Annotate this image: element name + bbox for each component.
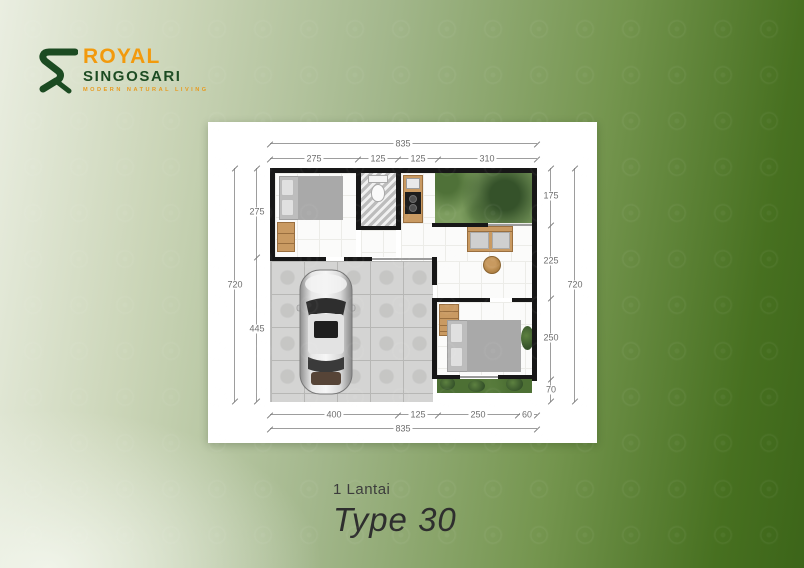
dim-left-total-line: 720 [234, 168, 235, 402]
dim-tick [395, 412, 401, 418]
caption-type: Type 30 [333, 501, 457, 539]
dim-right-seg-1: 175 [541, 192, 560, 201]
dim-top-seg-4: 310 [477, 155, 496, 164]
logo-brand: ROYAL [83, 46, 209, 67]
shrub [468, 380, 485, 392]
dim-tick [355, 156, 361, 162]
coffee-table [483, 256, 501, 274]
dim-right-total: 720 [565, 281, 584, 290]
dim-tick [435, 156, 441, 162]
bed-1-pillow [281, 199, 294, 216]
toilet-tank [368, 175, 388, 183]
wall-bedroom1-bathroom [356, 168, 361, 230]
logo-text: ROYAL SINGOSARI MODERN NATURAL LIVING [83, 46, 209, 94]
wall-bathroom-kitchen [396, 168, 401, 230]
brand-logo: ROYAL SINGOSARI MODERN NATURAL LIVING [36, 46, 209, 94]
wall-living-bedroom2-left [432, 298, 490, 302]
wall-top [270, 168, 537, 173]
dim-right-segments-line: 175 225 250 70 [550, 168, 551, 402]
dim-tick [254, 254, 260, 260]
shrub [506, 377, 523, 391]
bed-2-pillow [450, 323, 463, 343]
dim-tick [232, 165, 238, 171]
bed-2-pillow [450, 347, 463, 367]
dim-tick [572, 398, 578, 404]
dim-tick [548, 165, 554, 171]
wall-bedroom2-bottom-left [432, 375, 460, 379]
dim-top-seg-3: 125 [408, 155, 427, 164]
dim-right-seg-2: 225 [541, 257, 560, 266]
bed-2-blanket [467, 320, 521, 372]
bedroom2-window [460, 376, 498, 378]
dim-right-seg-4: 70 [544, 386, 558, 395]
caption-floors: 1 Lantai [333, 481, 457, 498]
wall-living-bedroom2-right [512, 298, 537, 302]
dim-left-total: 720 [225, 281, 244, 290]
wall-garden [432, 223, 488, 227]
floorplan-drawing [270, 168, 537, 402]
dim-tick [254, 165, 260, 171]
sofa-cushion [492, 232, 510, 249]
dim-top-segments-line: 275 125 125 310 [270, 158, 537, 159]
dim-tick [435, 412, 441, 418]
toilet-bowl [371, 184, 385, 202]
logo-subbrand: SINGOSARI [83, 69, 209, 84]
garden-glass-door [488, 224, 532, 226]
kitchen-sink [406, 178, 420, 189]
hallway-floor [361, 230, 396, 257]
dim-tick [254, 398, 260, 404]
floorplan-card: 835 275 125 125 310 720 275 445 [208, 122, 597, 443]
dim-bottom-seg-1: 400 [324, 411, 343, 420]
dim-left-seg-2: 445 [247, 325, 266, 334]
bed-1-blanket [298, 176, 343, 220]
dim-top-seg-1: 275 [304, 155, 323, 164]
garden-courtyard [435, 173, 532, 223]
dim-tick [267, 156, 273, 162]
dim-tick [548, 222, 554, 228]
dim-bottom-segments-line: 400 125 250 60 [270, 414, 537, 415]
poster: ROYAL SINGOSARI MODERN NATURAL LIVING 83… [0, 0, 804, 568]
dim-tick [548, 295, 554, 301]
dim-tick [534, 156, 540, 162]
wall-left [270, 168, 275, 261]
bed-1-pillow [281, 179, 294, 196]
front-window [372, 258, 434, 260]
dim-tick [548, 376, 554, 382]
wall-front-right [344, 257, 372, 261]
dim-bottom-seg-4: 60 [520, 411, 534, 420]
dim-tick [232, 398, 238, 404]
caption: 1 Lantai Type 30 [333, 481, 457, 539]
dim-tick [267, 426, 273, 432]
wall-right [532, 168, 537, 381]
dim-tick [534, 426, 540, 432]
car-top-view [296, 269, 356, 395]
kitchen-stove [405, 192, 421, 214]
wall-bedroom2-bottom-right [498, 375, 537, 379]
dim-right-seg-3: 250 [541, 334, 560, 343]
wardrobe-1 [277, 222, 295, 252]
dim-tick [534, 141, 540, 147]
dim-top-total: 835 [393, 140, 412, 149]
dim-tick [534, 412, 540, 418]
dim-top-seg-2: 125 [368, 155, 387, 164]
wall-bedroom2-left [432, 298, 437, 379]
dim-tick [572, 165, 578, 171]
dim-tick [548, 398, 554, 404]
dim-left-segments-line: 275 445 [256, 168, 257, 402]
dim-tick [267, 141, 273, 147]
dim-tick [267, 412, 273, 418]
dim-bottom-seg-3: 250 [468, 411, 487, 420]
dim-left-seg-1: 275 [247, 208, 266, 217]
logo-r-monogram-icon [36, 46, 78, 94]
dim-bottom-total-line: 835 [270, 428, 537, 429]
dim-top-total-line: 835 [270, 143, 537, 144]
dim-right-total-line: 720 [574, 168, 575, 402]
dim-bottom-seg-2: 125 [408, 411, 427, 420]
wall-bathroom-bottom [356, 226, 401, 230]
dim-tick [395, 156, 401, 162]
sofa-cushion [470, 232, 489, 249]
wall-entry-stub [432, 257, 437, 285]
dim-bottom-total: 835 [393, 425, 412, 434]
wall-front-left [270, 257, 326, 261]
logo-tagline: MODERN NATURAL LIVING [83, 88, 209, 94]
